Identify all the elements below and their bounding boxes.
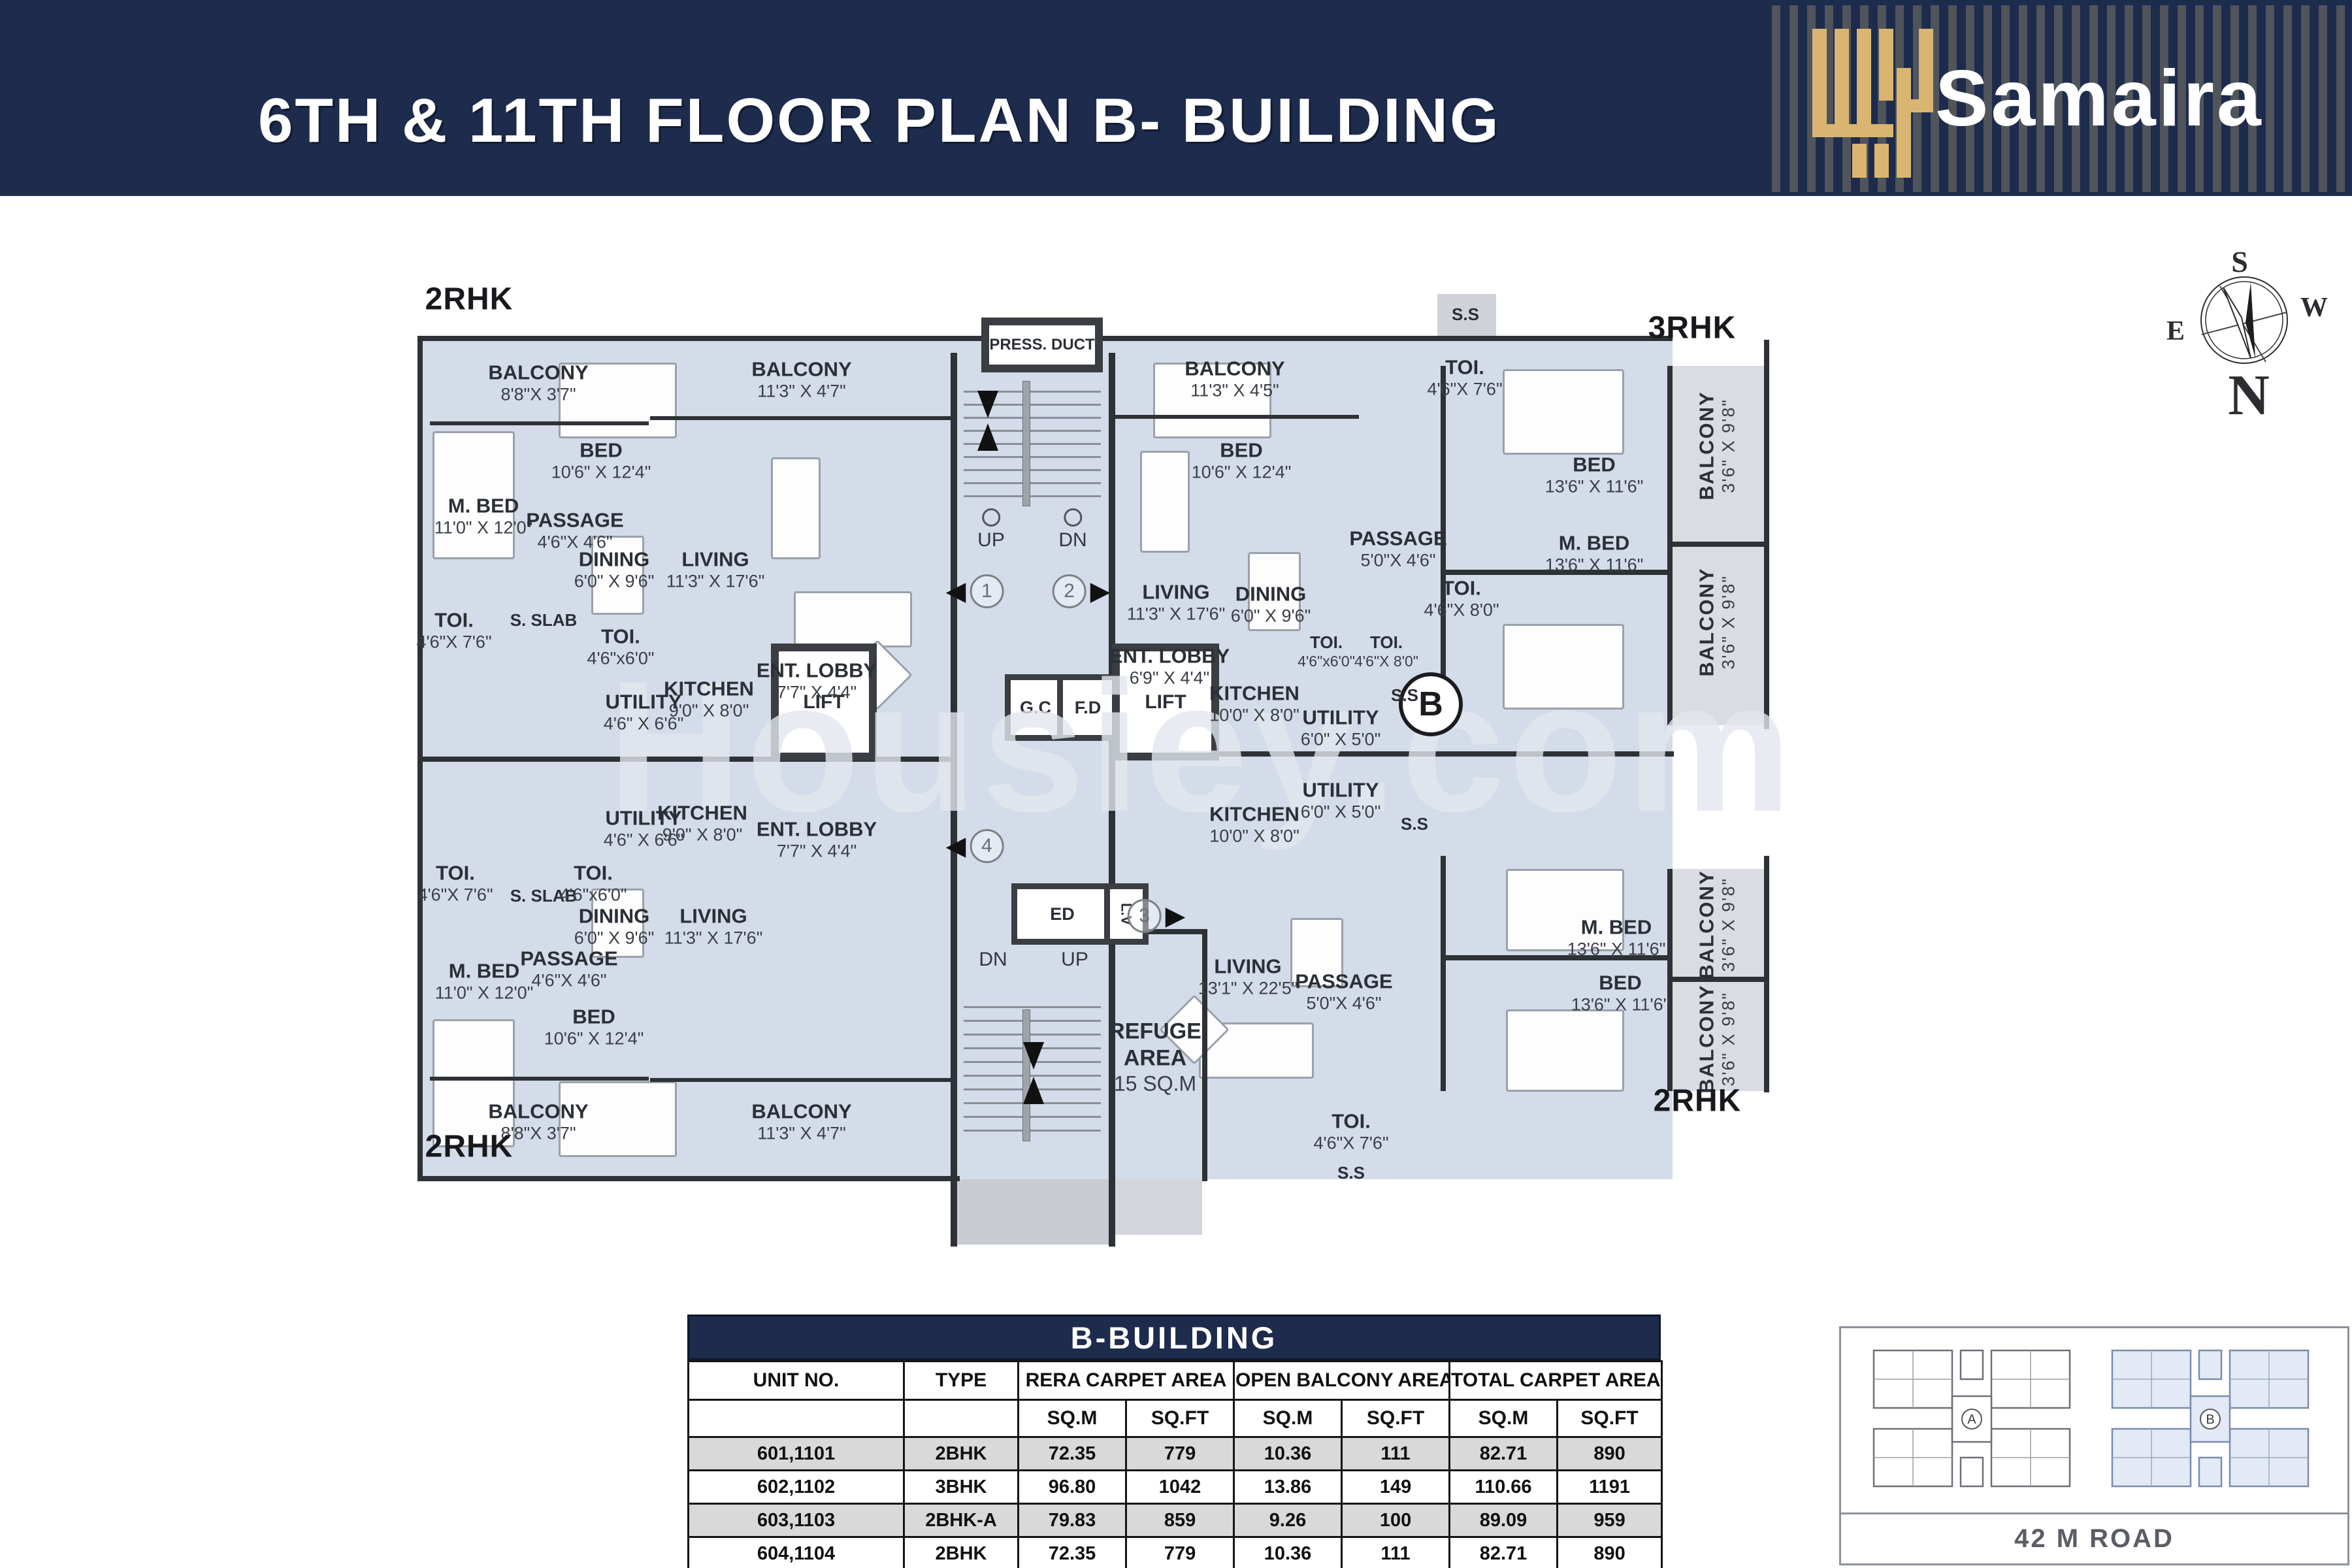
room-name: TOI. bbox=[1354, 633, 1418, 653]
compass-south: S bbox=[2231, 245, 2248, 278]
room-label-sslab-a: S. SLAB bbox=[510, 611, 578, 630]
room-dimensions: 4'6"X 8'0" bbox=[1424, 600, 1499, 620]
table-cell: 2BHK bbox=[904, 1537, 1019, 1568]
table-cell: 100 bbox=[1342, 1504, 1450, 1537]
brand-monogram-icon bbox=[1812, 29, 1933, 178]
room-name: UTILITY bbox=[1301, 779, 1381, 802]
room-dimensions: 6'0" X 5'0" bbox=[1301, 729, 1381, 749]
room-label-passage-c: PASSAGE4'6"X 4'6" bbox=[520, 947, 617, 991]
room-label-toi-a: TOI.4'6"X 7'6" bbox=[416, 609, 491, 653]
site-key-plan: A B 42 M ROAD bbox=[1839, 1326, 2349, 1565]
room-name: BED bbox=[551, 439, 651, 463]
room-dimensions: 4'6"X 7'6" bbox=[417, 885, 493, 905]
room-dimensions: 4'6"x6'0" bbox=[587, 648, 654, 668]
room-name: ENT. LOBBY bbox=[1109, 645, 1230, 668]
door-arrow-icon: ▶ bbox=[1090, 578, 1111, 604]
unit-type-label-u3: 2RHK bbox=[425, 1129, 514, 1165]
table-cell: 111 bbox=[1342, 1537, 1450, 1568]
room-name: TOI. bbox=[1427, 356, 1502, 380]
table-row: 602,11023BHK96.80104213.86149110.661191 bbox=[689, 1471, 1662, 1504]
sub-sqm: SQ.M bbox=[1019, 1400, 1126, 1437]
room-name: KITCHEN bbox=[657, 802, 747, 825]
stair-tread bbox=[964, 482, 1101, 484]
col-unit-no: UNIT NO. bbox=[689, 1362, 904, 1400]
stair-arrow-icon bbox=[977, 391, 998, 418]
room-dimensions: 11'3" X 17'6" bbox=[666, 571, 765, 591]
room-dimensions: 4'6"X 7'6" bbox=[416, 632, 491, 652]
stair-up-label: UP bbox=[977, 508, 1005, 551]
table-cell: 890 bbox=[1558, 1437, 1662, 1471]
room-name: LIVING bbox=[664, 905, 763, 928]
table-cell: 72.35 bbox=[1019, 1437, 1126, 1471]
wall bbox=[417, 1176, 960, 1181]
header-bar: 6TH & 11TH FLOOR PLAN B- BUILDING Samair… bbox=[0, 0, 2352, 196]
door-arrow-icon: ▶ bbox=[1166, 903, 1186, 929]
room-label-kitchen-d: KITCHEN10'0" X 8'0" bbox=[1209, 803, 1299, 847]
stair-up-label: UP bbox=[1061, 949, 1088, 971]
building-b-label: B bbox=[2206, 1413, 2214, 1427]
wall bbox=[951, 353, 957, 1247]
room-name: S.S bbox=[1337, 1164, 1365, 1183]
room-dimensions: 3'6" X 9'8" bbox=[1718, 391, 1739, 500]
table-row: 604,11042BHK72.3577910.3611182.71890 bbox=[689, 1537, 1662, 1568]
table-cell: 82.71 bbox=[1450, 1437, 1558, 1471]
stair-arrow-icon bbox=[1023, 1042, 1044, 1070]
room-label-mbed-a: M. BED11'0" X 12'0" bbox=[434, 495, 533, 538]
table-subheader-row: SQ.M SQ.FT SQ.M SQ.FT SQ.M SQ.FT bbox=[689, 1400, 1662, 1437]
stair-tread bbox=[964, 1020, 1101, 1022]
wall bbox=[430, 1077, 649, 1081]
room-name: LIVING bbox=[1198, 955, 1298, 979]
compass-east: E bbox=[2166, 316, 2185, 346]
wall bbox=[430, 421, 649, 425]
room-label-ss-b: S.S bbox=[1391, 686, 1418, 706]
room-label-toi-d: TOI.4'6"X 8'0" bbox=[1424, 577, 1499, 621]
table-cell: 10.36 bbox=[1234, 1537, 1342, 1568]
room-label-bed-c: BED13'6" X 11'6" bbox=[1545, 453, 1644, 497]
room-dimensions: 8'8"X 3'7" bbox=[488, 384, 588, 404]
table-cell: 89.09 bbox=[1450, 1504, 1558, 1537]
room-label-toi-g: TOI.4'6"X 7'6" bbox=[417, 862, 493, 906]
compass-north: N bbox=[2228, 364, 2270, 427]
road-label: 42 M ROAD bbox=[1841, 1512, 2347, 1563]
table-cell: 111 bbox=[1342, 1437, 1450, 1471]
table-cell: 13.86 bbox=[1234, 1471, 1342, 1504]
room-dimensions: 7'7" X 4'4" bbox=[757, 682, 877, 702]
room-label-living-b: LIVING11'3" X 17'6" bbox=[1127, 581, 1226, 625]
room-dimensions: 11'3" X 17'6" bbox=[664, 928, 763, 948]
room-name: M. BED bbox=[1567, 916, 1666, 939]
room-name: TOI. bbox=[1313, 1110, 1388, 1134]
table-cell: 1042 bbox=[1126, 1471, 1234, 1504]
room-name: TOI. bbox=[1298, 633, 1355, 653]
stair-tread bbox=[964, 1006, 1101, 1008]
room-name: TOI. bbox=[1424, 577, 1499, 600]
door-marker-1: ◀ 1 bbox=[946, 574, 1004, 608]
room-label-kitchen-a: KITCHEN9'0" X 8'0" bbox=[664, 678, 754, 721]
table-row: 603,11032BHK-A79.838599.2610089.09959 bbox=[689, 1504, 1662, 1537]
room-dimensions: 9'0" X 8'0" bbox=[664, 700, 754, 721]
room-label-passage-a: PASSAGE4'6"X 4'6" bbox=[526, 509, 623, 553]
room-label-toi-f: TOI.4'6"X 8'0" bbox=[1354, 633, 1418, 670]
room-name: PASSAGE bbox=[1349, 527, 1446, 551]
room-label-mbed-d: M. BED13'6" X 11'6" bbox=[1567, 916, 1666, 960]
stair-tread bbox=[964, 1130, 1101, 1132]
room-label-balcony-c: BALCONY11'3" X 4'5" bbox=[1184, 357, 1284, 401]
room-name: BED bbox=[544, 1005, 644, 1029]
room-label-lobby-b: ENT. LOBBY6'9" X 4'4" bbox=[1109, 645, 1230, 689]
col-rera-carpet: RERA CARPET AREA bbox=[1019, 1362, 1234, 1400]
table-cell: 604,1104 bbox=[689, 1537, 904, 1568]
stair-spine bbox=[1022, 381, 1030, 506]
room-label-passage-b: PASSAGE5'0"X 4'6" bbox=[1349, 527, 1446, 571]
table-cell: 2BHK-A bbox=[904, 1504, 1019, 1537]
room-name: PASSAGE bbox=[526, 509, 623, 532]
room-dimensions: 11'0" X 12'0" bbox=[435, 983, 534, 1003]
wall bbox=[1764, 340, 1769, 729]
room-label-living-a: LIVING11'3" X 17'6" bbox=[666, 548, 765, 592]
page-title: 6TH & 11TH FLOOR PLAN B- BUILDING bbox=[258, 85, 1501, 157]
room-name: DINING bbox=[1231, 583, 1311, 606]
room-name: TOI. bbox=[559, 862, 627, 885]
sub-sqm: SQ.M bbox=[1450, 1400, 1558, 1437]
room-label-toi-e: TOI.4'6"x6'0" bbox=[1298, 633, 1355, 670]
table-cell: 890 bbox=[1558, 1537, 1662, 1568]
room-dimensions: 13'6" X 11'6" bbox=[1571, 994, 1670, 1015]
furniture bbox=[1140, 451, 1190, 553]
stair-tread bbox=[964, 495, 1101, 497]
room-dimensions: 11'3" X 4'5" bbox=[1184, 380, 1284, 400]
room-label-dining-b: DINING6'0" X 9'6" bbox=[1231, 583, 1311, 627]
room-label-balcony-b: BALCONY11'3" X 4'7" bbox=[751, 358, 851, 402]
room-dimensions: 6'0" X 9'6" bbox=[574, 571, 655, 591]
table-cell: 72.35 bbox=[1019, 1537, 1126, 1568]
room-name: S.S bbox=[1452, 305, 1479, 325]
room-dimensions: 5'0"X 4'6" bbox=[1349, 550, 1446, 570]
room-label-balcony-a: BALCONY8'8"X 3'7" bbox=[488, 361, 588, 405]
room-label-dining-a: DINING6'0" X 9'6" bbox=[574, 548, 655, 592]
stair-dn-label: DN bbox=[979, 949, 1007, 971]
room-name: ENT. LOBBY bbox=[757, 818, 877, 841]
table-cell: 82.71 bbox=[1450, 1537, 1558, 1568]
table-cell: 959 bbox=[1558, 1504, 1662, 1537]
room-dimensions: 4'6"X 7'6" bbox=[1313, 1133, 1388, 1153]
room-name: BALCONY bbox=[751, 358, 851, 382]
room-label-ss-d: S.S bbox=[1337, 1164, 1365, 1183]
room-name: DINING bbox=[574, 548, 655, 572]
room-name: S.S bbox=[1391, 686, 1418, 706]
room-dimensions: 10'0" X 8'0" bbox=[1209, 826, 1299, 846]
room-name: M. BED bbox=[435, 960, 534, 983]
room-dimensions: 11'3" X 17'6" bbox=[1127, 604, 1226, 624]
room-label-bed-e: BED13'6" X 11'6" bbox=[1571, 972, 1670, 1015]
stair-dot-icon bbox=[982, 508, 1000, 527]
room-label-utility-b: UTILITY6'0" X 5'0" bbox=[1301, 706, 1381, 750]
door-arrow-icon: ◀ bbox=[946, 578, 966, 604]
door-marker-3: 3 ▶ bbox=[1128, 899, 1186, 933]
wall bbox=[1667, 366, 1673, 725]
room-name: PASSAGE bbox=[1295, 970, 1392, 994]
room-label-toi-b: TOI.4'6"x6'0" bbox=[587, 625, 654, 669]
sub-sqm: SQ.M bbox=[1234, 1400, 1342, 1437]
room-name: KITCHEN bbox=[1209, 803, 1299, 826]
room-dimensions: 10'6" X 12'4" bbox=[551, 462, 651, 482]
room-name: M. BED bbox=[434, 495, 533, 518]
stair-tread bbox=[964, 1034, 1101, 1036]
door-marker-2: 2 ▶ bbox=[1053, 574, 1111, 608]
area-table: B-BUILDING UNIT NO. TYPE RERA CARPET ARE… bbox=[687, 1315, 1661, 1568]
pressure-duct: PRESS. DUCT bbox=[981, 318, 1103, 372]
table-cell: 110.66 bbox=[1450, 1471, 1558, 1504]
room-label-mbed-b: M. BED13'6" X 11'6" bbox=[1545, 532, 1644, 576]
door-arrow-icon: ◀ bbox=[946, 833, 966, 859]
room-label-balcony-d: BALCONY3'6" X 9'8" bbox=[1695, 391, 1739, 500]
room-dimensions: 3'6" X 9'8" bbox=[1718, 870, 1739, 979]
room-dimensions: 13'6" X 11'6" bbox=[1545, 555, 1644, 575]
room-label-balcony-h: BALCONY3'6" X 9'8" bbox=[1695, 870, 1739, 979]
room-dimensions: 10'0" X 8'0" bbox=[1209, 705, 1299, 725]
room-name: BALCONY bbox=[488, 361, 588, 385]
stair-dn-label: DN bbox=[1058, 508, 1086, 551]
room-label-balcony-e: BALCONY3'6" X 9'8" bbox=[1695, 567, 1739, 676]
room-dimensions: 3'6" X 9'8" bbox=[1718, 984, 1739, 1093]
room-label-lobby-c: ENT. LOBBY7'7" X 4'4" bbox=[757, 818, 877, 862]
table-cell: 3BHK bbox=[904, 1471, 1019, 1504]
room-dimensions: 11'0" X 12'0" bbox=[434, 517, 533, 538]
room-label-balcony-g: BALCONY11'3" X 4'7" bbox=[751, 1100, 851, 1144]
table-title: B-BUILDING bbox=[687, 1315, 1661, 1360]
furniture bbox=[1503, 369, 1624, 455]
room-name: M. BED bbox=[1545, 532, 1644, 555]
wall bbox=[1764, 856, 1769, 1092]
stair-arrow-icon bbox=[1023, 1077, 1044, 1104]
room-name: TOI. bbox=[417, 862, 493, 885]
room-name: DINING bbox=[574, 905, 655, 928]
room-name: BALCONY bbox=[1695, 567, 1719, 676]
room-name: LIVING bbox=[666, 548, 765, 572]
room-dimensions: 6'0" X 5'0" bbox=[1301, 802, 1381, 822]
room-dimensions: 11'3" X 4'7" bbox=[751, 1123, 851, 1143]
door-marker-4: ◀ 4 bbox=[946, 829, 1004, 863]
electrical-duct: ED bbox=[1011, 883, 1113, 945]
room-name: BALCONY bbox=[1184, 357, 1284, 381]
room-dimensions: 6'0" X 9'6" bbox=[574, 928, 655, 948]
room-dimensions: 3'6" X 9'8" bbox=[1718, 567, 1739, 676]
room-dimensions: 13'1" X 22'5" bbox=[1198, 978, 1298, 998]
room-dimensions: 4'6"x6'0" bbox=[559, 885, 627, 905]
room-label-toi-i: TOI.4'6"X 7'6" bbox=[1313, 1110, 1388, 1154]
room-label-toi-h: TOI.4'6"x6'0" bbox=[559, 862, 627, 906]
wall bbox=[1673, 542, 1764, 547]
table-cell: 149 bbox=[1342, 1471, 1450, 1504]
stair-tread bbox=[964, 456, 1101, 458]
room-name: BED bbox=[1192, 439, 1292, 463]
room-name: TOI. bbox=[587, 625, 654, 649]
room-name: BED bbox=[1571, 972, 1670, 995]
stair-tread bbox=[964, 1116, 1101, 1118]
table-cell: 10.36 bbox=[1234, 1437, 1342, 1471]
room-name: UTILITY bbox=[1301, 706, 1381, 730]
compass-west: W bbox=[2300, 293, 2328, 323]
room-name: TOI. bbox=[416, 609, 491, 632]
room-dimensions: 13'6" X 11'6" bbox=[1545, 476, 1644, 497]
room-name: S.S bbox=[1401, 815, 1428, 834]
room-label-dining-c: DINING6'0" X 9'6" bbox=[574, 905, 655, 949]
room-name: LIVING bbox=[1127, 581, 1226, 604]
table-cell: 859 bbox=[1126, 1504, 1234, 1537]
room-label-bed-d: BED10'6" X 12'4" bbox=[544, 1005, 644, 1049]
table-cell: 79.83 bbox=[1019, 1504, 1126, 1537]
stair-arrow-icon bbox=[977, 423, 998, 451]
room-label-passage-d: PASSAGE5'0"X 4'6" bbox=[1295, 970, 1392, 1014]
room-label-bed-a: BED10'6" X 12'4" bbox=[551, 439, 651, 483]
room-name: BALCONY bbox=[1695, 391, 1719, 500]
room-name: ENT. LOBBY bbox=[757, 659, 877, 683]
room-label-mbed-c: M. BED11'0" X 12'0" bbox=[435, 960, 534, 1004]
furniture bbox=[794, 591, 912, 647]
room-dimensions: 6'9" X 4'4" bbox=[1109, 668, 1230, 688]
unit-type-label-u1: 2RHK bbox=[425, 282, 514, 318]
furniture bbox=[1503, 624, 1624, 710]
room-label-lobby-a: ENT. LOBBY7'7" X 4'4" bbox=[757, 659, 877, 703]
room-label-living-d: LIVING13'1" X 22'5" bbox=[1198, 955, 1298, 999]
col-total-carpet: TOTAL CARPET AREA bbox=[1450, 1362, 1662, 1400]
col-open-balcony: OPEN BALCONY AREA bbox=[1234, 1362, 1450, 1400]
furniture bbox=[771, 457, 821, 559]
room-dimensions: 4'6"X 8'0" bbox=[1354, 653, 1418, 670]
table-cell: 9.26 bbox=[1234, 1504, 1342, 1537]
building-a-label: A bbox=[1967, 1413, 1976, 1427]
room-label-kitchen-b: KITCHEN10'0" X 8'0" bbox=[1209, 682, 1299, 726]
wall bbox=[650, 1078, 954, 1082]
table-cell: 779 bbox=[1126, 1437, 1234, 1471]
compass-rose: S W E N bbox=[2149, 243, 2345, 439]
brand-name: Samaira bbox=[1935, 52, 2264, 144]
room-dimensions: 10'6" X 12'4" bbox=[544, 1028, 644, 1049]
room-dimensions: 5'0"X 4'6" bbox=[1295, 993, 1392, 1013]
room-dimensions: 11'3" X 4'7" bbox=[751, 381, 851, 401]
room-label-ss-a: S.S bbox=[1452, 305, 1479, 325]
sub-sqft: SQ.FT bbox=[1342, 1400, 1450, 1437]
room-name: BALCONY bbox=[751, 1100, 851, 1124]
sub-sqft: SQ.FT bbox=[1126, 1400, 1234, 1437]
unit-type-label-u2: 3RHK bbox=[1648, 310, 1737, 346]
col-type: TYPE bbox=[904, 1362, 1019, 1400]
table-cell: 602,1102 bbox=[689, 1471, 904, 1504]
wall bbox=[1441, 856, 1446, 1091]
room-dimensions: 10'6" X 12'4" bbox=[1192, 462, 1292, 482]
room-dimensions: 13'6" X 11'6" bbox=[1567, 939, 1666, 959]
table-cell: 603,1103 bbox=[689, 1504, 904, 1537]
wall bbox=[1111, 415, 1359, 419]
room-dimensions: 7'7" X 4'4" bbox=[757, 841, 877, 861]
wall bbox=[650, 416, 954, 420]
building-b-miniplan: B bbox=[2102, 1343, 2318, 1499]
room-dimensions: 6'0" X 9'6" bbox=[1231, 606, 1311, 626]
room-dimensions: 4'6"X 7'6" bbox=[1427, 379, 1502, 399]
sub-sqft: SQ.FT bbox=[1558, 1400, 1662, 1437]
room-label-balcony-i: BALCONY3'6" X 9'8" bbox=[1695, 984, 1739, 1093]
stair-dot-icon bbox=[1064, 508, 1082, 527]
room-name: PASSAGE bbox=[520, 947, 617, 971]
room-name: BALCONY bbox=[488, 1100, 588, 1124]
room-dimensions: 4'6"x6'0" bbox=[1298, 653, 1355, 670]
room-dimensions: 9'0" X 8'0" bbox=[657, 825, 747, 845]
table-cell: 779 bbox=[1126, 1537, 1234, 1568]
furniture bbox=[1506, 1009, 1624, 1092]
table-cell: 1191 bbox=[1558, 1471, 1662, 1504]
table-cell: 601,1101 bbox=[689, 1437, 904, 1471]
refuge-area-label: REFUGEAREA 15 SQ.M bbox=[1109, 1019, 1201, 1096]
table-header-row: UNIT NO. TYPE RERA CARPET AREA OPEN BALC… bbox=[689, 1362, 1662, 1400]
room-label-toi-c: TOI.4'6"X 7'6" bbox=[1427, 356, 1502, 400]
stair-spine bbox=[1022, 1009, 1030, 1141]
building-a-miniplan: A bbox=[1864, 1343, 2080, 1499]
room-dimensions: 4'6"X 4'6" bbox=[520, 970, 617, 990]
stair-tread bbox=[964, 469, 1101, 471]
table-row: 601,11012BHK72.3577910.3611182.71890 bbox=[689, 1437, 1662, 1471]
table-cell: 96.80 bbox=[1019, 1471, 1126, 1504]
room-name: BED bbox=[1545, 453, 1644, 477]
page: 6TH & 11TH FLOOR PLAN B- BUILDING Samair… bbox=[0, 0, 2352, 1568]
room-label-ss-c: S.S bbox=[1401, 815, 1428, 834]
room-name: BALCONY bbox=[1695, 984, 1719, 1093]
room-label-bed-b: BED10'6" X 12'4" bbox=[1192, 439, 1292, 483]
room-label-kitchen-c: KITCHEN9'0" X 8'0" bbox=[657, 802, 747, 845]
room-name: KITCHEN bbox=[664, 678, 754, 701]
room-name: BALCONY bbox=[1695, 870, 1719, 979]
room-label-living-c: LIVING11'3" X 17'6" bbox=[664, 905, 763, 949]
room-label-utility-d: UTILITY6'0" X 5'0" bbox=[1301, 779, 1381, 823]
brand-logo: Samaira bbox=[1772, 5, 2345, 192]
table-cell: 2BHK bbox=[904, 1437, 1019, 1471]
room-name: S. SLAB bbox=[510, 611, 578, 630]
wall bbox=[1109, 353, 1115, 1247]
unit-type-label-u4: 2RHK bbox=[1654, 1083, 1742, 1119]
